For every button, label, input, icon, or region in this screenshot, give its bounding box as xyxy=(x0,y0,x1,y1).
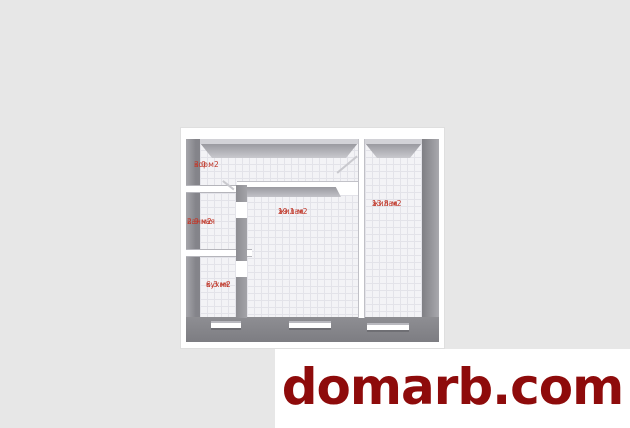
bathroom-door-opening xyxy=(236,202,247,218)
kitchen-area: 6.3 м2 xyxy=(206,280,231,290)
kitchen-window xyxy=(211,323,241,328)
corridor-living-wall-face xyxy=(237,187,341,197)
living-large-area: 19.1 м2 xyxy=(278,207,308,217)
living-small-window xyxy=(367,325,409,330)
corridor-area: 3.0 м2 xyxy=(194,160,219,170)
watermark-box: domarb.com xyxy=(275,349,630,428)
corridor-living-wall-top xyxy=(237,181,358,187)
right-wall xyxy=(422,139,439,342)
kitchen-door-opening xyxy=(236,261,247,277)
floor-plan: кор. 3.0 м2 ванная 2.9 м2 жилая 19.1 м2 … xyxy=(181,128,444,348)
watermark-text: domarb.com xyxy=(282,362,624,416)
living-room-small-floor xyxy=(365,143,422,318)
living-rooms-divider-wall xyxy=(358,139,365,318)
top-wall xyxy=(186,139,439,144)
living-small-area: 13.8 м2 xyxy=(372,199,402,209)
bathroom-area: 2.9 м2 xyxy=(187,217,212,227)
living-large-window xyxy=(289,323,331,328)
top-wall-face-corridor xyxy=(200,143,358,158)
